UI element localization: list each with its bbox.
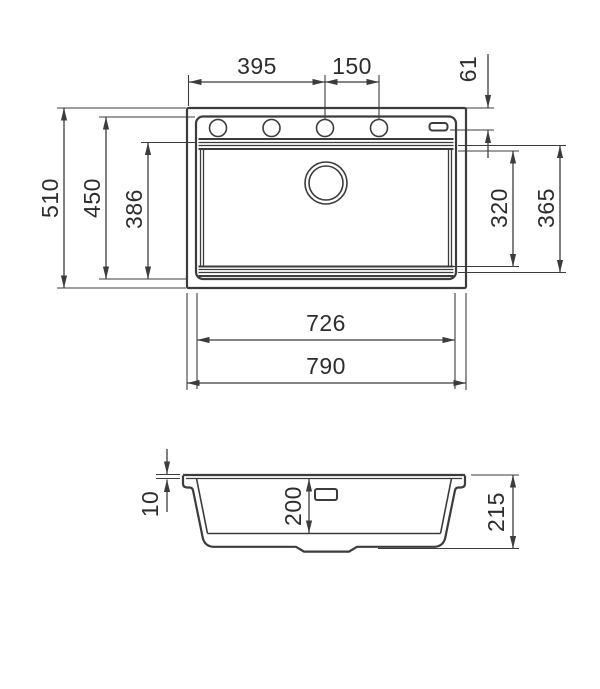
tap-hole-3 (317, 120, 334, 137)
section-inner-wall-right (441, 479, 452, 534)
tap-hole-4 (371, 120, 388, 137)
dim-rim-depth-label: 450 (79, 178, 105, 218)
plan-dimensions: 395 150 61 510 450 (37, 53, 566, 390)
dim-bowl-step-depth-label: 365 (533, 188, 559, 228)
dim-bowl-inner-depth-label: 200 (280, 486, 306, 526)
plan-view (187, 108, 466, 288)
dim-overall-depth-label: 510 (37, 178, 63, 218)
drain-inner-circle (309, 166, 343, 200)
dim-overall-width: 790 (187, 293, 466, 390)
dim-bowl-ledge-depth: 386 (121, 143, 197, 280)
section-outer-contour (183, 476, 465, 552)
drain-outer-circle (305, 162, 347, 204)
dim-bowl-ledge-depth-label: 386 (121, 189, 147, 229)
dim-rim-thickness: 10 (137, 449, 180, 517)
tap-hole-2 (263, 120, 280, 137)
outer-rim-outline (187, 108, 466, 288)
dim-bowl-width-label: 726 (306, 310, 346, 336)
overflow-slot (430, 123, 448, 131)
dim-bowl-floor-depth: 320 (447, 151, 519, 267)
section-overflow-slot (315, 489, 337, 500)
dim-tap-hole-centerline-inset-label: 61 (455, 56, 481, 83)
section-view (183, 475, 465, 552)
tap-hole-1 (210, 120, 227, 137)
dim-bowl-step-depth: 365 (458, 146, 566, 273)
dim-overall-width-label: 790 (306, 353, 346, 379)
dim-bowl-inner-depth: 200 (280, 479, 309, 533)
bowl-rim-outline (196, 117, 456, 280)
dim-overall-height: 215 (378, 475, 519, 549)
dim-overall-height-label: 215 (483, 492, 509, 532)
sink-technical-drawing: 395 150 61 510 450 (0, 0, 600, 689)
dim-bowl-floor-depth-label: 320 (486, 188, 512, 228)
section-inner-wall-left (197, 479, 208, 534)
dim-overall-depth: 510 (37, 108, 186, 288)
sink-technical-drawing-page: 395 150 61 510 450 (0, 0, 600, 689)
dim-tap-hole-offset-label: 395 (237, 53, 277, 79)
dim-tap-hole-pitch-label: 150 (332, 53, 372, 79)
dim-rim-thickness-label: 10 (137, 491, 163, 518)
